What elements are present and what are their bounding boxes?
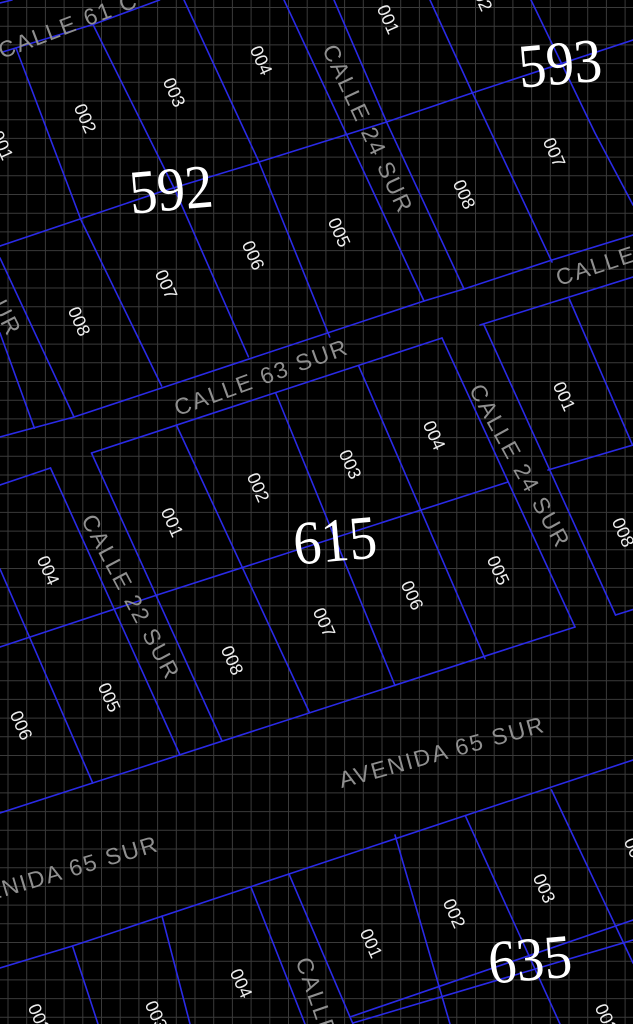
svg-text:592: 592 (126, 151, 215, 227)
svg-text:615: 615 (290, 502, 379, 578)
svg-text:635: 635 (485, 921, 574, 997)
svg-text:593: 593 (515, 25, 604, 101)
